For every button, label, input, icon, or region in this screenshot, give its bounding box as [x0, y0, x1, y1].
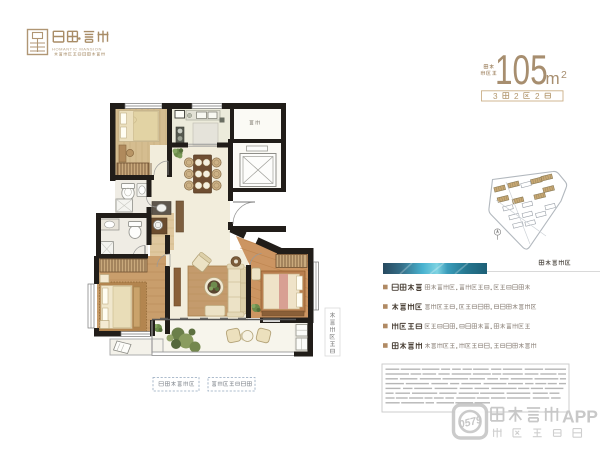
- svg-text:2: 2: [535, 92, 540, 101]
- svg-text:HOMANTIC MANSION: HOMANTIC MANSION: [52, 47, 102, 52]
- svg-text:APP: APP: [562, 407, 598, 427]
- svg-text:3: 3: [493, 92, 498, 101]
- svg-text:2: 2: [514, 92, 519, 101]
- svg-text:2: 2: [561, 69, 567, 81]
- svg-text:m: m: [546, 69, 560, 88]
- svg-text:105: 105: [495, 47, 548, 93]
